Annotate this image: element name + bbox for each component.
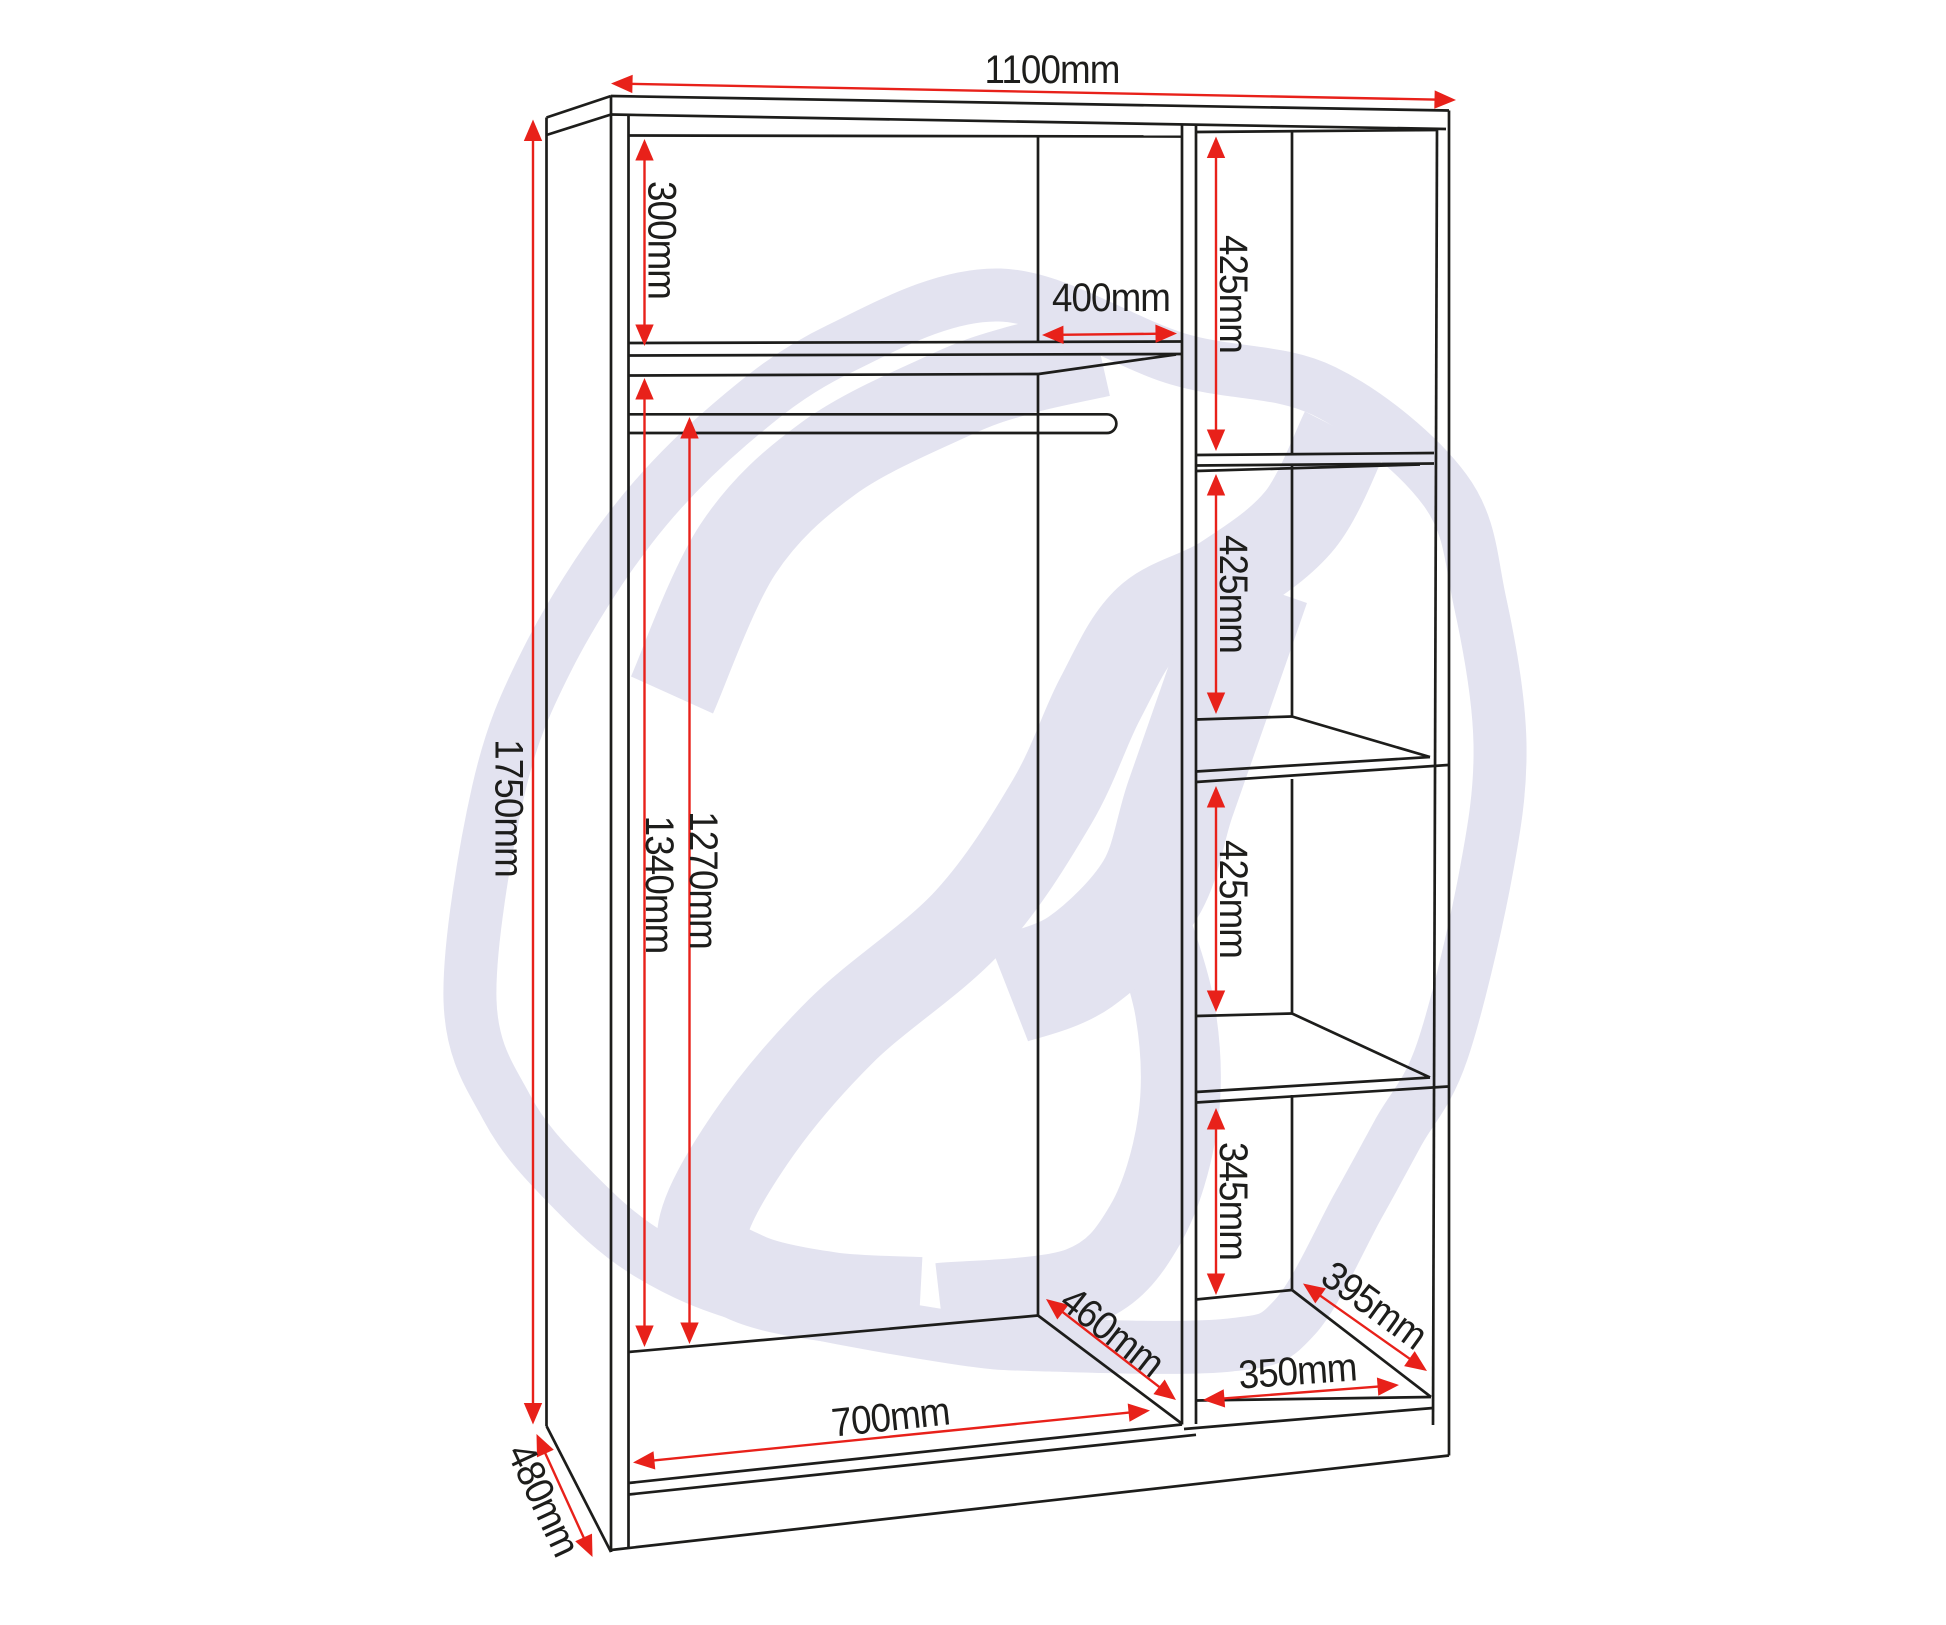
svg-text:425mm: 425mm: [1211, 840, 1256, 958]
svg-text:425mm: 425mm: [1211, 535, 1256, 653]
svg-text:345mm: 345mm: [1211, 1142, 1256, 1260]
svg-text:1100mm: 1100mm: [985, 48, 1120, 93]
svg-text:300mm: 300mm: [639, 181, 684, 299]
svg-text:1270mm: 1270mm: [681, 811, 726, 949]
svg-text:1750mm: 1750mm: [486, 739, 531, 877]
svg-text:400mm: 400mm: [1052, 276, 1170, 321]
svg-text:1340mm: 1340mm: [637, 816, 682, 954]
svg-text:350mm: 350mm: [1237, 1345, 1358, 1398]
svg-text:425mm: 425mm: [1211, 235, 1256, 353]
